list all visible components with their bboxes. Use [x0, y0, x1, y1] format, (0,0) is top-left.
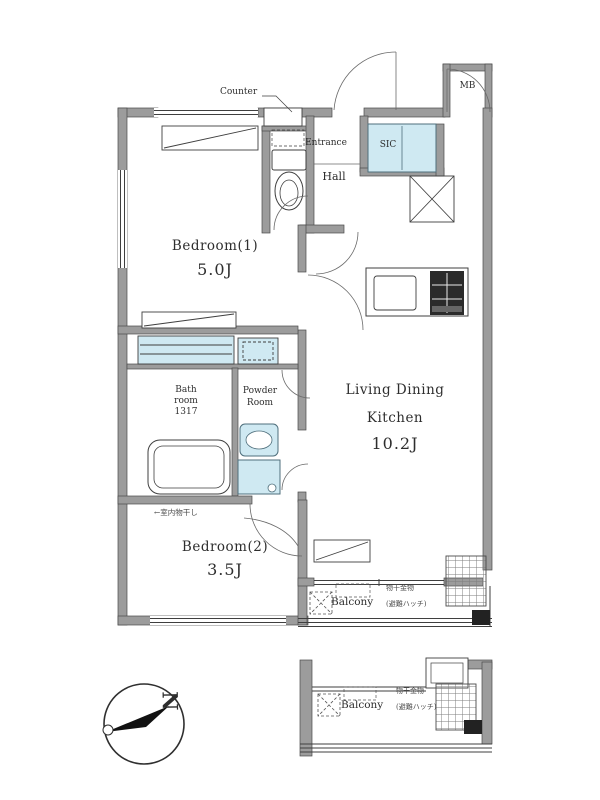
corner-post-lower	[464, 720, 482, 734]
balcony-railing-lower	[300, 744, 492, 752]
powder-label-line2: Room	[234, 399, 286, 408]
stove-icon	[430, 271, 464, 315]
wc-door-arc	[282, 464, 308, 490]
bath-label-line1: Bath	[156, 386, 216, 395]
ldk-size: 10.2J	[320, 436, 470, 453]
ldk-label-line1: Living Dining	[320, 383, 470, 397]
ldk-label-line2: Kitchen	[320, 411, 470, 425]
powder-label-line1: Powder	[234, 387, 286, 396]
bathtub-icon	[148, 440, 230, 494]
kitchen-counter	[366, 268, 468, 316]
counter-box	[262, 96, 302, 126]
floor-plan: Counter Entrance Hall SIC MB Bedroom(1) …	[0, 0, 600, 800]
washbasin-icon	[240, 424, 278, 456]
fridge-space-icon	[410, 176, 454, 222]
balcony-lower-bracket: (避難ハッチ)	[396, 704, 436, 711]
hall-label: Hall	[310, 171, 358, 183]
bedroom2-name: Bedroom(2)	[158, 540, 292, 554]
bedroom2-size: 3.5J	[158, 562, 292, 579]
balcony-lower-label: Balcony	[341, 700, 383, 711]
balcony-main-label: Balcony	[331, 597, 373, 608]
entrance-door-arc	[334, 52, 396, 110]
sink-icon	[374, 276, 416, 310]
entrance-label: Entrance	[296, 139, 356, 148]
floor-plan-linework	[0, 0, 600, 800]
balcony-lower-note: 物干金物	[396, 688, 424, 695]
bath-size: 1317	[156, 408, 216, 417]
escape-hatch-icon-lower	[318, 694, 340, 716]
counter-label: Counter	[220, 88, 257, 97]
balcony-main-note: 物干金物	[386, 585, 414, 592]
hall-door-arc	[316, 232, 358, 274]
compass-north-label: N	[158, 691, 180, 711]
bedroom1-door-arc	[308, 275, 363, 330]
sic-label: SIC	[368, 141, 408, 150]
bedroom1-name: Bedroom(1)	[150, 239, 280, 253]
outdoor-unit-box	[426, 658, 468, 688]
washer-pan-icon	[238, 460, 280, 494]
mb-label: MB	[443, 82, 492, 91]
hatched-area	[446, 556, 486, 606]
balcony-main-bracket: (避難ハッチ)	[386, 601, 426, 608]
corner-post	[472, 610, 490, 625]
escape-hatch-icon	[310, 592, 332, 614]
bath-label-line2: room	[156, 397, 216, 406]
bedroom1-size: 5.0J	[150, 262, 280, 279]
bedroom2-note: ←室内物干し	[154, 509, 198, 517]
